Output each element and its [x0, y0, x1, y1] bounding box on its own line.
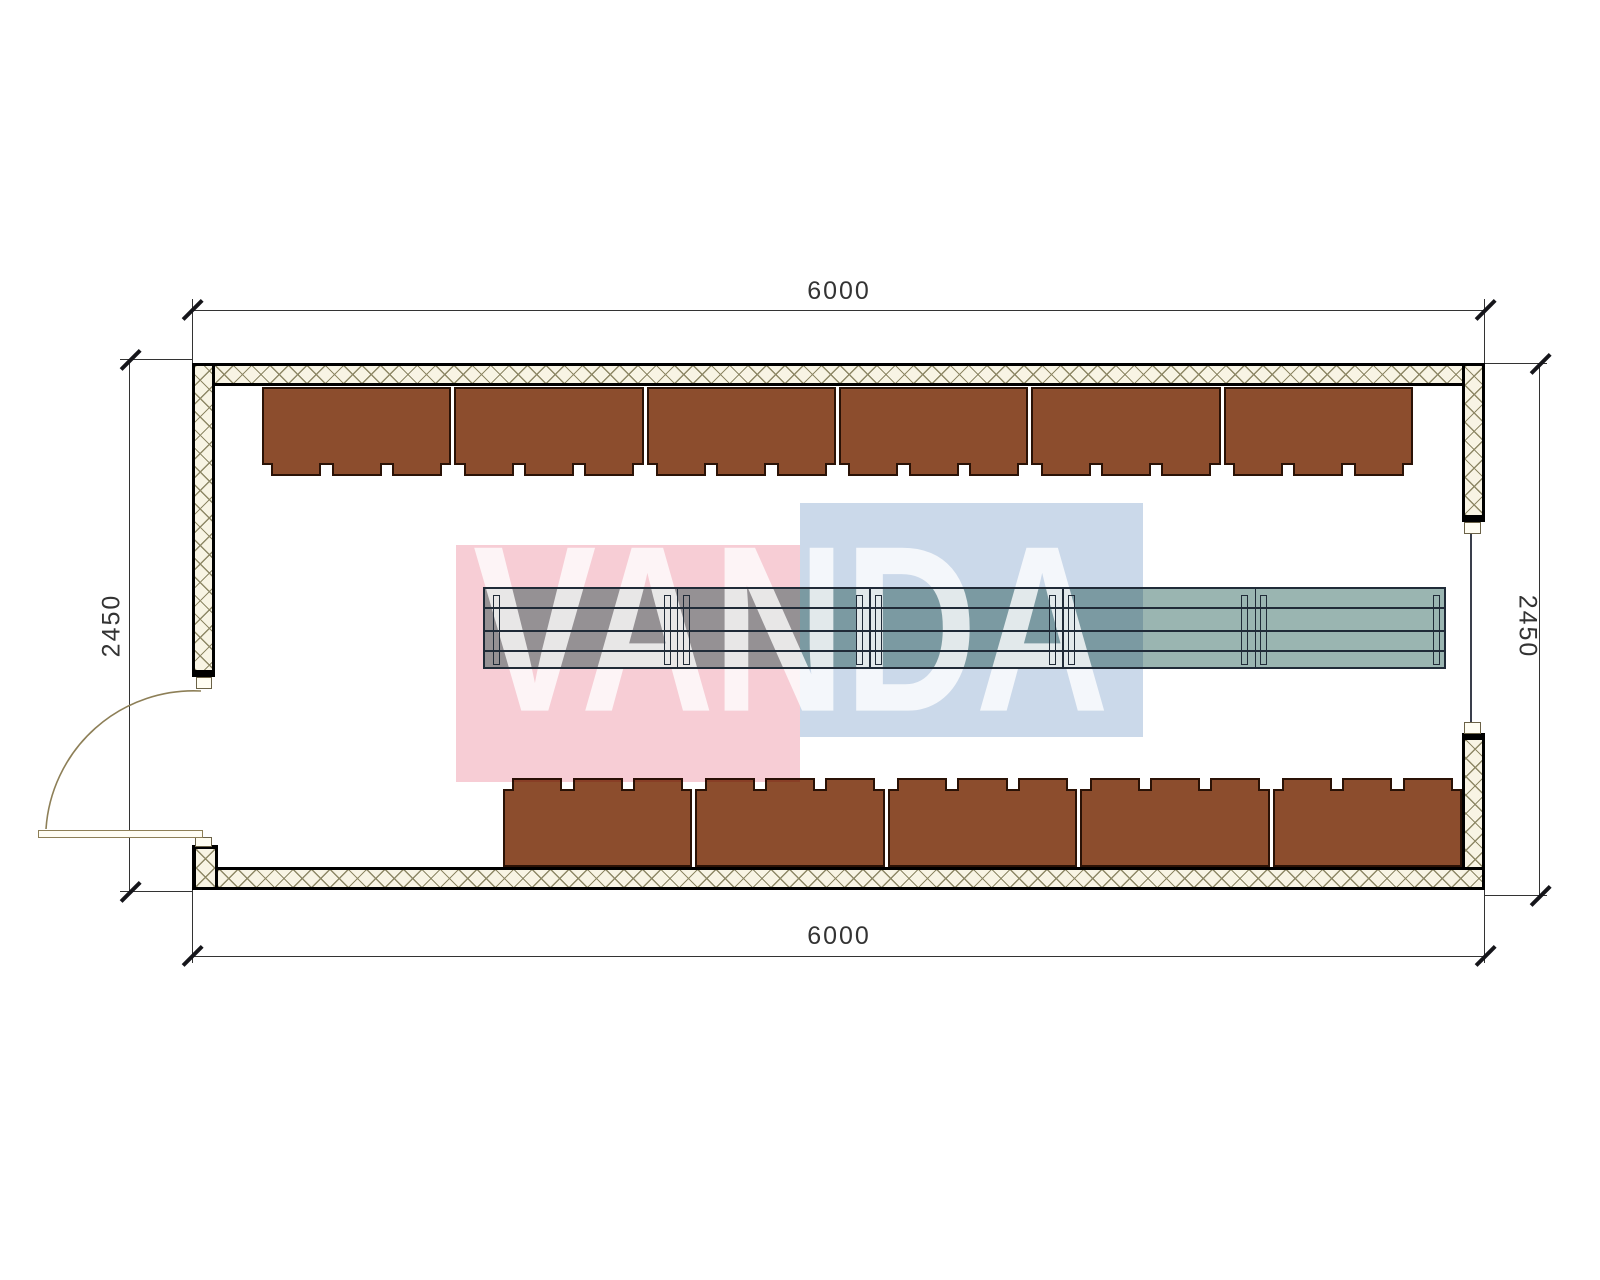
table-leg	[856, 595, 863, 665]
wall-left	[192, 363, 215, 677]
desk-row-top	[262, 387, 1413, 465]
table-leg	[1260, 595, 1267, 665]
desk	[647, 387, 836, 465]
desk	[888, 789, 1077, 867]
desk	[1031, 387, 1220, 465]
wall-right-upper	[1462, 363, 1485, 522]
table-leg	[683, 595, 690, 665]
dimension-label-right: 2450	[1513, 557, 1542, 697]
table-plank-line	[485, 650, 1444, 652]
table-section-divider	[1062, 589, 1064, 667]
desk	[1224, 387, 1413, 465]
dimension-line-bottom	[192, 956, 1485, 957]
wall-bottom	[215, 867, 1485, 890]
desk-chair-tab	[1210, 778, 1260, 791]
door-leaf	[38, 830, 203, 838]
desk-chair-tab	[271, 463, 321, 476]
desk-chair-tab	[332, 463, 382, 476]
table-leg	[1433, 595, 1440, 665]
table-leg	[1241, 595, 1248, 665]
desk	[454, 387, 643, 465]
desk	[695, 789, 884, 867]
dimension-label-top: 6000	[769, 277, 909, 306]
desk-chair-tab	[1150, 778, 1200, 791]
desk	[839, 387, 1028, 465]
door-frame-top	[196, 677, 212, 689]
door-frame-bottom	[195, 837, 212, 847]
window-pane-line	[1470, 534, 1472, 722]
dimension-line-top	[192, 310, 1485, 311]
desk-chair-tab	[392, 463, 442, 476]
desk-chair-tab	[1342, 778, 1392, 791]
table-plank-line	[485, 607, 1444, 609]
table-plank-line	[485, 630, 1444, 632]
desk-chair-tab	[1354, 463, 1404, 476]
dimension-label-left: 2450	[98, 556, 127, 696]
meeting-table-linework	[483, 587, 1446, 669]
desk-chair-tab	[1403, 778, 1453, 791]
door-swing-arc	[46, 691, 201, 829]
table-section-divider	[1255, 589, 1257, 667]
floor-plan-canvas: 6000 6000 2450 2450 VANDA	[0, 0, 1600, 1280]
dimension-line-left	[129, 360, 130, 893]
window-frame-bottom	[1464, 722, 1481, 734]
wall-top	[192, 363, 1485, 386]
desk	[1273, 789, 1462, 867]
desk	[1080, 789, 1269, 867]
table-section-divider	[869, 589, 871, 667]
window-frame-top	[1464, 522, 1481, 534]
desk-chair-tab	[1161, 463, 1211, 476]
table-leg	[1068, 595, 1075, 665]
dimension-label-bottom: 6000	[769, 922, 909, 951]
table-leg	[1049, 595, 1056, 665]
table-leg	[875, 595, 882, 665]
table-section-divider	[677, 589, 679, 667]
desk-chair-tab	[1233, 463, 1283, 476]
desk	[503, 789, 692, 867]
table-leg	[664, 595, 671, 665]
desk-chair-tab	[1293, 463, 1343, 476]
desk	[262, 387, 451, 465]
desk-chair-tab	[1282, 778, 1332, 791]
desk-row-bottom	[503, 789, 1462, 867]
door-jamb-wall	[192, 845, 218, 890]
table-leg	[493, 595, 500, 665]
